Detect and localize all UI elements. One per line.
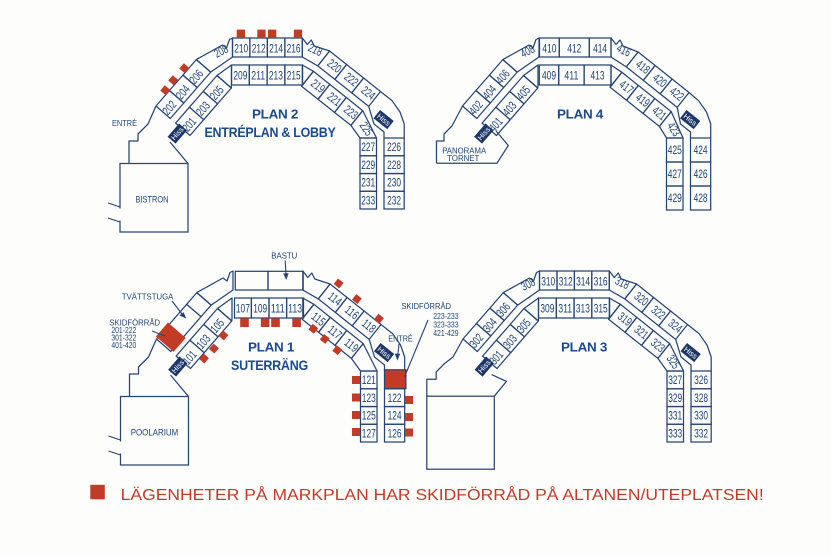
- svg-text:231: 231: [361, 176, 375, 190]
- svg-text:427: 427: [668, 167, 682, 181]
- svg-text:333: 333: [668, 426, 682, 440]
- svg-text:229: 229: [361, 158, 375, 172]
- svg-text:312: 312: [559, 274, 573, 288]
- svg-text:POOLARIUM: POOLARIUM: [131, 427, 179, 437]
- svg-text:ENTRÉ: ENTRÉ: [112, 119, 137, 128]
- svg-text:228: 228: [387, 158, 401, 172]
- svg-text:411: 411: [564, 69, 578, 83]
- svg-text:330: 330: [694, 409, 708, 423]
- svg-text:401-420: 401-420: [111, 340, 136, 350]
- svg-text:315: 315: [594, 302, 608, 316]
- svg-text:125: 125: [362, 409, 376, 423]
- svg-text:410: 410: [542, 41, 556, 55]
- svg-text:214: 214: [269, 41, 283, 55]
- svg-text:SKIDFÖRRÅD: SKIDFÖRRÅD: [401, 301, 451, 311]
- svg-text:122: 122: [388, 391, 402, 405]
- svg-text:PLAN 1: PLAN 1: [248, 340, 294, 355]
- svg-text:210: 210: [234, 41, 248, 55]
- svg-text:412: 412: [567, 41, 581, 55]
- svg-text:227: 227: [361, 140, 375, 154]
- svg-text:TORNET: TORNET: [447, 154, 479, 163]
- svg-text:428: 428: [694, 191, 708, 205]
- svg-text:230: 230: [387, 176, 401, 190]
- svg-text:113: 113: [288, 302, 302, 316]
- svg-text:TVÄTTSTUGA: TVÄTTSTUGA: [122, 292, 174, 301]
- svg-text:124: 124: [388, 409, 402, 423]
- svg-text:PLAN 2: PLAN 2: [252, 107, 298, 122]
- svg-text:233: 233: [361, 193, 375, 207]
- svg-text:426: 426: [694, 167, 708, 181]
- svg-text:209: 209: [233, 69, 247, 83]
- svg-text:216: 216: [287, 41, 301, 55]
- svg-text:212: 212: [252, 41, 266, 55]
- svg-text:413: 413: [591, 69, 605, 83]
- svg-text:332: 332: [694, 426, 708, 440]
- svg-text:326: 326: [694, 373, 708, 387]
- svg-text:331: 331: [668, 409, 682, 423]
- svg-text:121: 121: [362, 373, 376, 387]
- svg-text:316: 316: [594, 274, 608, 288]
- svg-text:ENTRÉ: ENTRÉ: [388, 335, 413, 344]
- svg-text:313: 313: [576, 302, 590, 316]
- svg-text:BASTU: BASTU: [271, 252, 297, 261]
- svg-text:421-429: 421-429: [433, 328, 459, 338]
- svg-text:424: 424: [694, 143, 708, 157]
- svg-text:123: 123: [362, 391, 376, 405]
- svg-text:310: 310: [541, 274, 555, 288]
- svg-text:215: 215: [287, 69, 301, 83]
- svg-text:BISTRON: BISTRON: [136, 194, 169, 204]
- svg-text:311: 311: [558, 302, 572, 316]
- svg-text:425: 425: [668, 143, 682, 157]
- svg-text:213: 213: [269, 69, 283, 83]
- svg-text:414: 414: [593, 41, 607, 55]
- svg-text:314: 314: [576, 274, 590, 288]
- svg-text:LÄGENHETER PÅ MARKPLAN HAR SKI: LÄGENHETER PÅ MARKPLAN HAR SKIDFÖRRÅD PÅ…: [121, 485, 764, 504]
- svg-text:107: 107: [236, 302, 250, 316]
- svg-text:329: 329: [668, 391, 682, 405]
- svg-text:309: 309: [540, 302, 554, 316]
- svg-text:PLAN 4: PLAN 4: [557, 107, 604, 122]
- svg-text:111: 111: [271, 302, 285, 316]
- svg-text:126: 126: [388, 426, 402, 440]
- svg-text:SUTERRÄNG: SUTERRÄNG: [231, 357, 308, 373]
- svg-text:429: 429: [668, 191, 682, 205]
- svg-text:ENTRÉPLAN & LOBBY: ENTRÉPLAN & LOBBY: [205, 124, 337, 140]
- svg-text:327: 327: [668, 373, 682, 387]
- svg-text:127: 127: [362, 426, 376, 440]
- svg-text:211: 211: [251, 69, 265, 83]
- svg-text:109: 109: [253, 302, 267, 316]
- svg-text:226: 226: [387, 140, 401, 154]
- svg-text:409: 409: [542, 69, 556, 83]
- svg-text:PLAN 3: PLAN 3: [561, 340, 607, 355]
- svg-text:232: 232: [387, 193, 401, 207]
- svg-text:328: 328: [694, 391, 708, 405]
